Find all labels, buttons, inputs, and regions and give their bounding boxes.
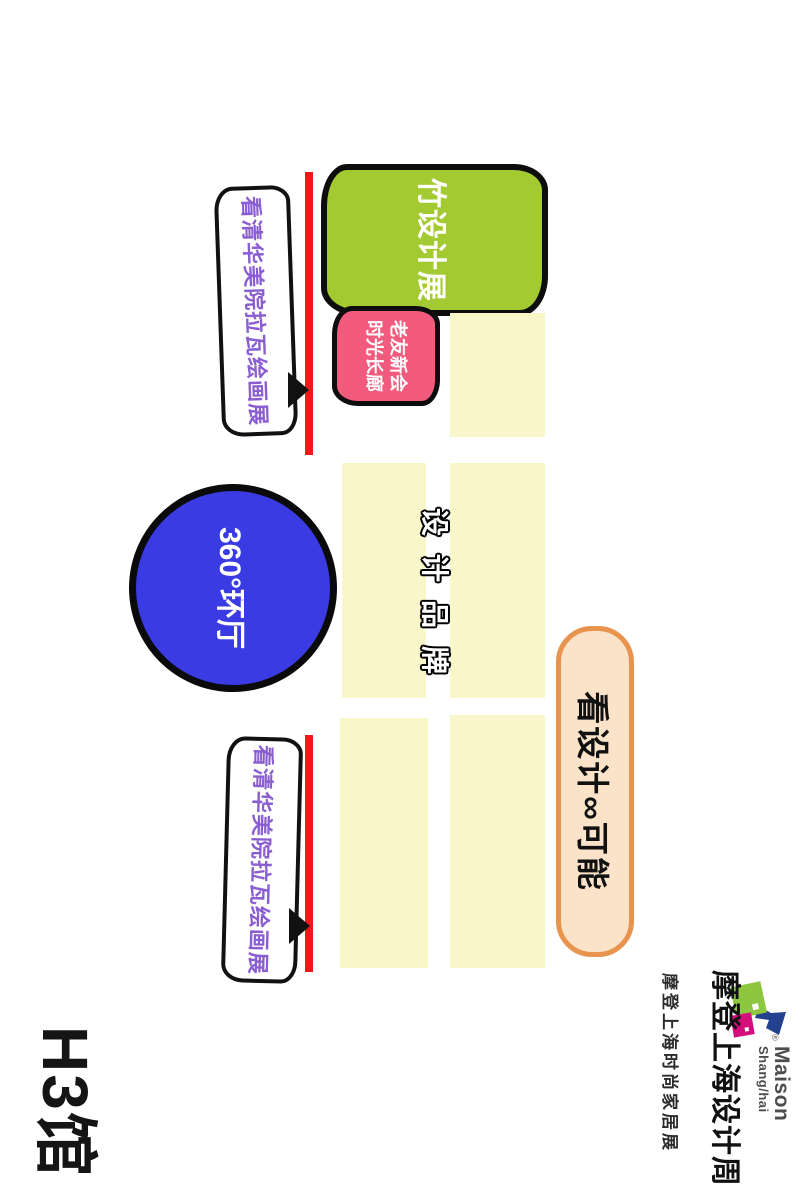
maison-shanghai-logo: ® Maison Shang/hai 摩登上海设计周 摩登上海时尚家居展 <box>640 968 800 1197</box>
gallery-banner-bottom-label: 看清华美院拉瓦绘画展 <box>243 745 281 976</box>
booth-block <box>450 463 545 698</box>
zone-bamboo-exhibition: 竹设计展 <box>321 164 548 316</box>
registered-mark-icon: ® <box>770 1034 780 1041</box>
old-friends-line2: 时光长廊 <box>362 320 386 392</box>
zone-design-possibility: 看设计∞可能 <box>556 626 634 957</box>
gallery-banner-top: 看清华美院拉瓦绘画展 <box>214 185 299 438</box>
gallery-banner-top-label: 看清华美院拉瓦绘画展 <box>236 195 276 426</box>
zone-bamboo-exhibition-label: 竹设计展 <box>413 178 457 302</box>
arrow-up-icon <box>289 908 310 944</box>
zone-360-round-hall-label: 360°环厅 <box>211 527 255 649</box>
logo-wordmark-shanghai: Shang/hai <box>756 1046 770 1121</box>
design-brands-label: 设计品牌 <box>416 494 456 706</box>
wall-line-top <box>305 172 313 455</box>
zone-360-round-hall: 360°环厅 <box>129 484 337 692</box>
logo-wordmark-maison: Maison <box>770 1046 792 1121</box>
booth-block <box>450 715 545 968</box>
zone-old-friends-corridor: 老友新会 时光长廊 <box>332 306 440 406</box>
arrow-up-icon <box>288 372 309 408</box>
logo-subtitle-cn: 摩登上海时尚家居展 <box>659 973 684 1153</box>
hall-map-rotated-stage: 看清华美院拉瓦绘画展 看清华美院拉瓦绘画展 竹设计展 老友新会 时光长廊 设计品… <box>0 0 800 1197</box>
booth-block <box>342 463 426 698</box>
hall-name-label: H3馆 <box>24 1026 116 1178</box>
zone-design-possibility-label: 看设计∞可能 <box>571 691 619 892</box>
booth-block <box>450 313 545 437</box>
old-friends-line1: 老友新会 <box>386 320 410 392</box>
logo-green-dot-icon <box>752 1003 759 1010</box>
booth-block <box>340 718 428 968</box>
hall-map-page: { "hall": { "label": "H3馆" }, "areas": {… <box>0 0 800 1197</box>
logo-title-cn: 摩登上海设计周 <box>706 970 750 1187</box>
logo-wordmark: Maison Shang/hai <box>756 1046 792 1121</box>
gallery-banner-bottom: 看清华美院拉瓦绘画展 <box>221 736 303 984</box>
